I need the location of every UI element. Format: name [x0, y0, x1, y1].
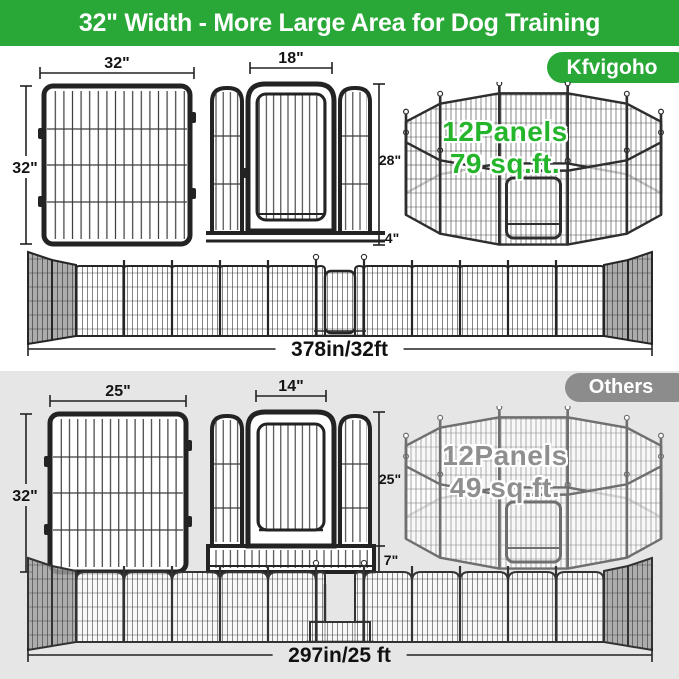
- kf-panel-height-label: 32": [12, 160, 37, 177]
- others-panel-height-label: 32": [12, 488, 37, 505]
- others-badge: Others: [565, 373, 679, 402]
- kf-pen-capacity-label: 12Panels 79 sq.ft.: [395, 116, 615, 180]
- kf-panel-width-label: 32": [104, 55, 129, 72]
- banner-title: 32" Width - More Large Area for Dog Trai…: [79, 9, 600, 38]
- kf-pen-panel-count: 12Panels: [395, 116, 615, 148]
- banner: 32" Width - More Large Area for Dog Trai…: [0, 0, 679, 46]
- kf-panel-diagram: 32" 32": [8, 52, 198, 252]
- kf-door-width-label: 18": [278, 52, 303, 67]
- others-pen-capacity-label: 12Panels 49 sq.ft.: [395, 440, 615, 504]
- kf-door-panel-diagram: 18" 28" 4": [198, 52, 403, 252]
- others-pen-area: 49 sq.ft.: [395, 472, 615, 504]
- kf-fence-length-label: 378in/32ft: [275, 337, 404, 363]
- product-infographic: 32" Width - More Large Area for Dog Trai…: [0, 0, 679, 679]
- others-panel-width-label: 25": [105, 383, 130, 400]
- kf-pen-area: 79 sq.ft.: [395, 148, 615, 180]
- others-door-width-label: 14": [278, 380, 303, 395]
- kfvigoho-badge: Kfvigoho: [547, 52, 679, 83]
- others-fence-length-label: 297in/25 ft: [272, 643, 407, 669]
- others-pen-panel-count: 12Panels: [395, 440, 615, 472]
